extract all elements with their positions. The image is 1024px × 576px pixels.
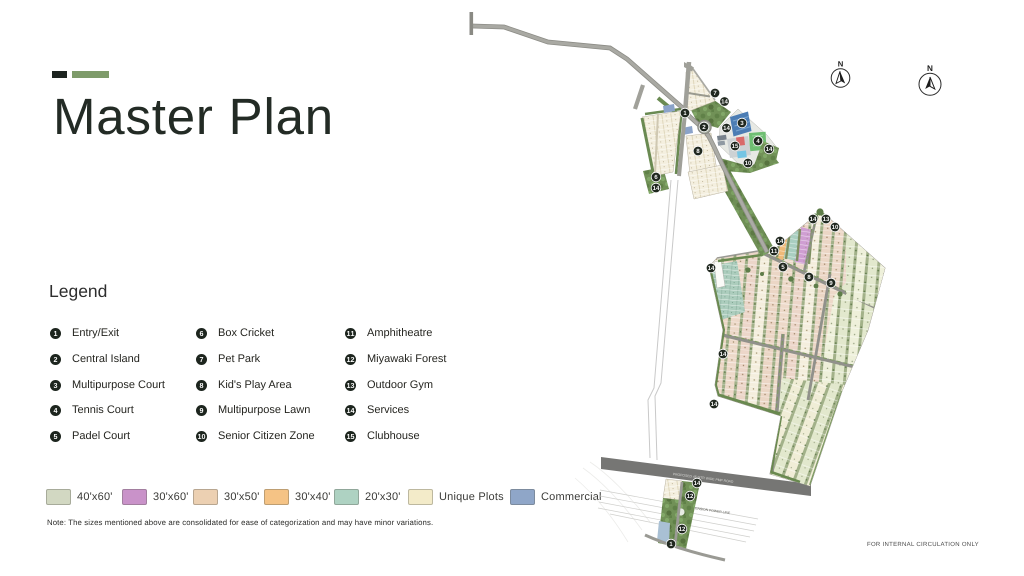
svg-text:N: N xyxy=(838,60,844,69)
svg-text:N: N xyxy=(927,64,933,73)
